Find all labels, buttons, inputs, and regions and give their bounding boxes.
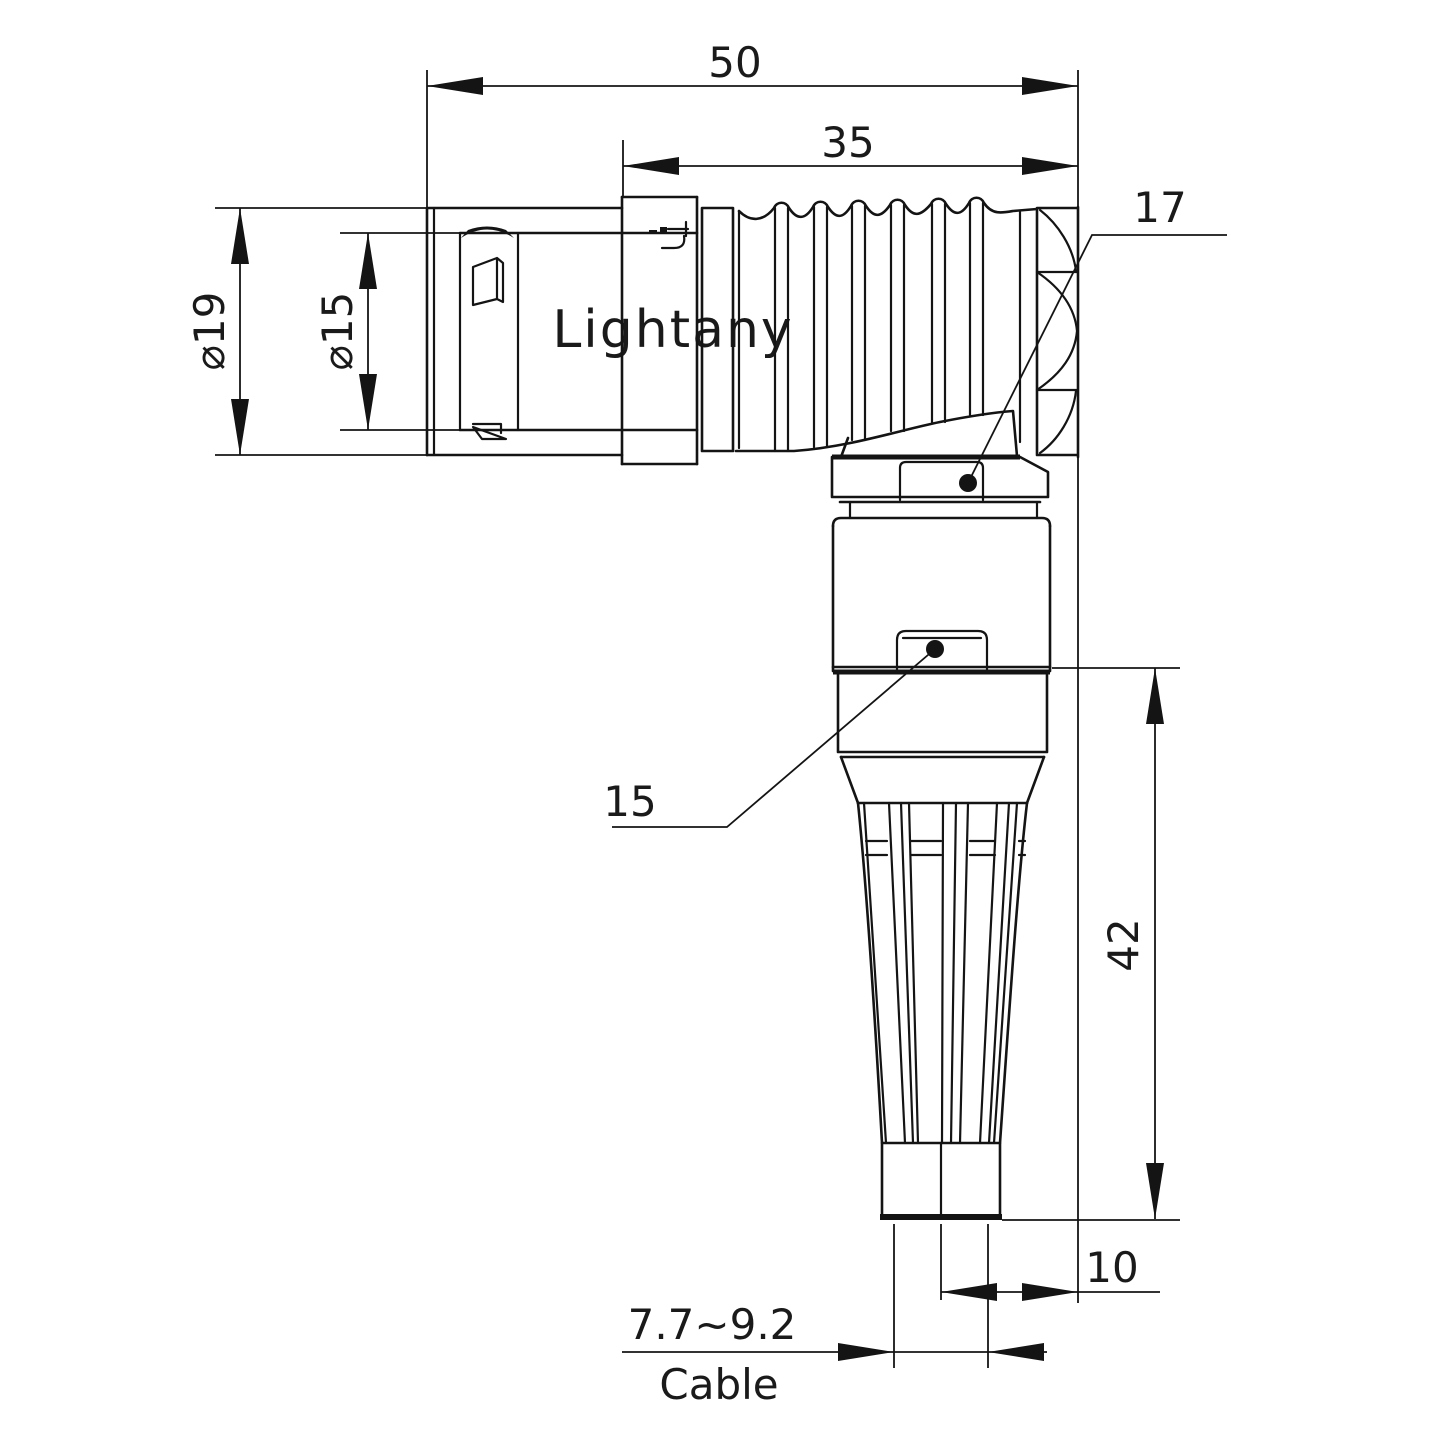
vertical-body	[833, 502, 1050, 803]
contact-clip-detail	[649, 222, 688, 248]
dim-cable-range: 7.7~9.2 Cable	[622, 1224, 1047, 1409]
dim-cable-range-label: 7.7~9.2	[628, 1300, 797, 1349]
dim-plug-diameter-15: ⌀15	[313, 233, 460, 430]
dim-d15-label: ⌀15	[313, 292, 362, 371]
cable-end-sleeve	[880, 1143, 1002, 1217]
cable-caption: Cable	[659, 1360, 778, 1409]
dim-10-label: 10	[1085, 1243, 1138, 1292]
dim-d19-label: ⌀19	[185, 292, 234, 371]
dim-outer-diameter-19: ⌀19	[185, 208, 427, 455]
dim-50-label: 50	[708, 38, 761, 87]
dim-15-label: 15	[603, 777, 656, 826]
tapered-strain-relief	[858, 803, 1027, 1143]
leader-body-nut-15: 15	[603, 649, 935, 827]
dim-42-label: 42	[1099, 918, 1148, 971]
leader-elbow-nut-17: 17	[968, 183, 1227, 483]
dim-rear-length-35: 35	[623, 118, 1078, 197]
dim-17-label: 17	[1133, 183, 1186, 232]
latch-sleeve-details	[461, 227, 514, 440]
keying-slot	[473, 258, 503, 305]
connector-technical-drawing: Lightany	[0, 0, 1440, 1440]
watermark-text: Lightany	[552, 300, 793, 360]
dim-axis-offset-10: 10	[941, 1224, 1160, 1301]
dim-35-label: 35	[821, 118, 874, 167]
technical-drawing-page: Lightany	[0, 0, 1440, 1440]
bottom-notch	[473, 424, 506, 439]
